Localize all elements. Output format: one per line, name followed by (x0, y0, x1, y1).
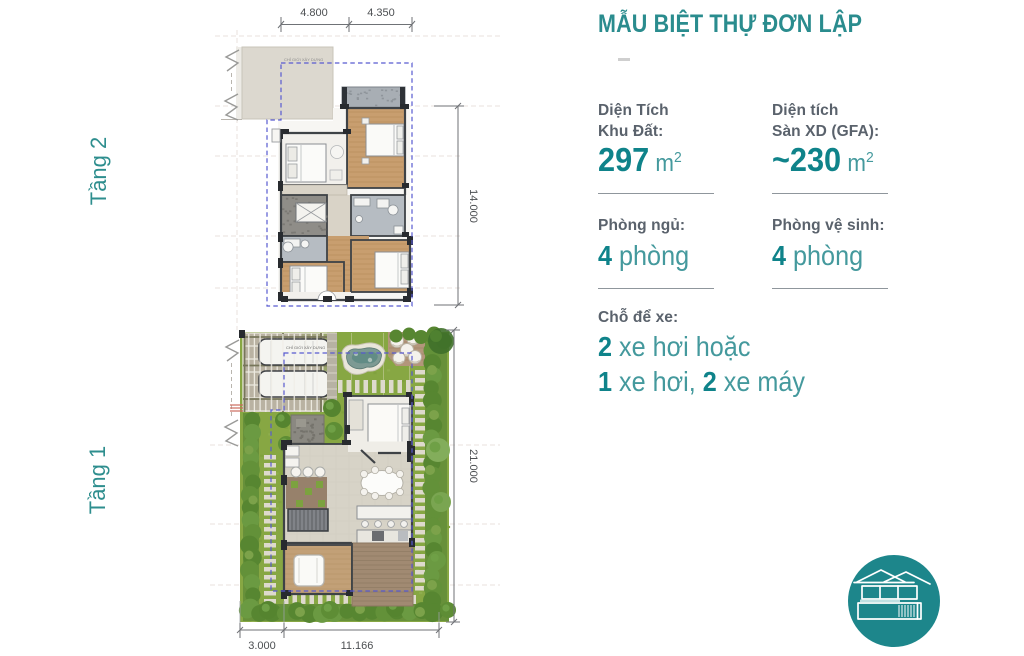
svg-text:CHỈ GIỚI XÂY DỰNG: CHỈ GIỚI XÂY DỰNG (286, 345, 325, 350)
svg-text:21.000: 21.000 (467, 449, 479, 483)
svg-text:3.000: 3.000 (248, 640, 276, 652)
svg-text:CHỈ GIỚI XÂY DỰNG: CHỈ GIỚI XÂY DỰNG (284, 57, 323, 62)
svg-text:11.166: 11.166 (341, 640, 374, 652)
svg-text:4.350: 4.350 (367, 7, 395, 19)
svg-text:14.000: 14.000 (467, 189, 479, 223)
svg-text:Tầng 2: Tầng 2 (86, 137, 111, 206)
svg-text:Tầng 1: Tầng 1 (85, 446, 110, 515)
svg-text:4.800: 4.800 (300, 7, 328, 19)
